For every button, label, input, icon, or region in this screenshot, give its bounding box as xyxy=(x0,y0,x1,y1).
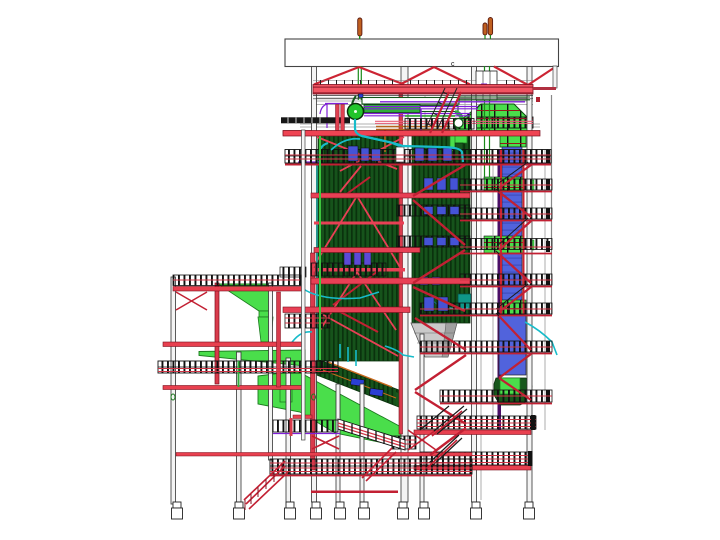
svg-text:c: c xyxy=(451,61,455,68)
